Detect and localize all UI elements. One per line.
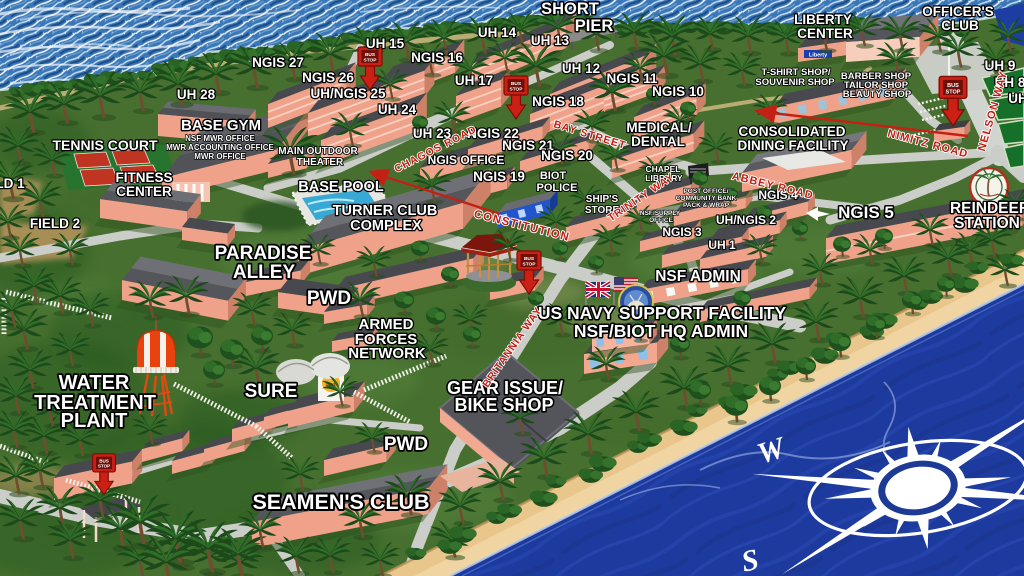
svg-text:SOUVENIR SHOP: SOUVENIR SHOP (755, 77, 835, 88)
svg-text:BEAUTY SHOP: BEAUTY SHOP (843, 89, 912, 100)
svg-text:BASE GYM: BASE GYM (181, 117, 261, 134)
svg-text:NGIS 3: NGIS 3 (662, 225, 702, 239)
svg-text:POST OFFICE/: POST OFFICE/ (683, 188, 728, 195)
svg-text:MWR ACCOUNTING OFFICE: MWR ACCOUNTING OFFICE (166, 143, 274, 152)
svg-text:NGIS 27: NGIS 27 (252, 55, 304, 70)
svg-text:NGIS 16: NGIS 16 (411, 50, 463, 65)
svg-text:WATER: WATER (59, 372, 130, 394)
svg-text:FITNESS: FITNESS (115, 170, 172, 185)
svg-text:UH 14: UH 14 (478, 25, 517, 40)
svg-text:UH 15: UH 15 (366, 36, 405, 51)
svg-text:SEAMEN'S CLUB: SEAMEN'S CLUB (252, 490, 429, 514)
svg-text:POLICE: POLICE (537, 182, 578, 194)
svg-text:SURE: SURE (245, 381, 298, 402)
svg-text:PLANT: PLANT (61, 410, 128, 432)
svg-text:UH 17: UH 17 (455, 73, 493, 88)
svg-text:LD 1: LD 1 (0, 176, 25, 191)
svg-text:NSF/BIOT HQ ADMIN: NSF/BIOT HQ ADMIN (574, 321, 748, 341)
svg-text:UH 24: UH 24 (378, 102, 417, 117)
svg-text:NGIS 11: NGIS 11 (606, 71, 658, 86)
svg-text:THEATER: THEATER (297, 157, 344, 168)
svg-text:US NAVY SUPPORT FACILITY: US NAVY SUPPORT FACILITY (538, 303, 787, 323)
svg-text:NSF MWR OFFICE: NSF MWR OFFICE (185, 134, 255, 143)
svg-text:PACK & WRAP: PACK & WRAP (683, 202, 730, 209)
svg-text:UH/NGIS 2: UH/NGIS 2 (716, 213, 776, 227)
svg-text:NGIS 5: NGIS 5 (838, 203, 894, 222)
svg-text:TENNIS COURT: TENNIS COURT (53, 137, 158, 153)
svg-text:OFFICER'S: OFFICER'S (922, 4, 993, 19)
svg-text:NSF SUPPLY: NSF SUPPLY (640, 210, 681, 217)
svg-text:PIER: PIER (575, 17, 614, 35)
svg-text:MAIN OUTDOOR: MAIN OUTDOOR (278, 146, 358, 157)
svg-text:CLUB: CLUB (941, 18, 979, 33)
svg-text:NGIS 18: NGIS 18 (532, 94, 584, 109)
svg-text:UH/NGIS 25: UH/NGIS 25 (310, 86, 386, 101)
svg-text:NGIS 20: NGIS 20 (541, 148, 593, 163)
svg-text:OFFICE: OFFICE (649, 217, 673, 224)
svg-text:CENTER: CENTER (797, 26, 853, 41)
svg-text:COMMUNITY BANK: COMMUNITY BANK (676, 195, 737, 202)
svg-text:PWD: PWD (307, 288, 351, 309)
svg-text:ALLEY: ALLEY (233, 262, 296, 283)
svg-text:FIELD 2: FIELD 2 (30, 216, 80, 231)
svg-text:NGIS 19: NGIS 19 (473, 169, 525, 184)
svg-text:CENTER: CENTER (116, 184, 172, 199)
svg-text:PWD: PWD (384, 434, 428, 455)
svg-text:BIOT: BIOT (540, 170, 567, 182)
svg-text:UH 13: UH 13 (531, 33, 570, 48)
svg-text:MWR OFFICE: MWR OFFICE (194, 152, 246, 161)
svg-text:SHORT: SHORT (541, 0, 599, 18)
svg-text:NGIS 26: NGIS 26 (302, 70, 354, 85)
svg-text:UH 1: UH 1 (708, 238, 736, 252)
svg-text:NGIS OFFICE: NGIS OFFICE (428, 153, 505, 167)
svg-text:UH 12: UH 12 (562, 61, 600, 76)
svg-text:DENTAL: DENTAL (631, 134, 685, 149)
svg-text:NETWORK: NETWORK (348, 345, 426, 362)
svg-text:MEDICAL/: MEDICAL/ (626, 120, 691, 135)
svg-text:BASE POOL: BASE POOL (298, 179, 384, 195)
svg-text:BIKE SHOP: BIKE SHOP (454, 395, 553, 415)
svg-text:NGIS 10: NGIS 10 (652, 84, 704, 99)
svg-text:LIBERTY: LIBERTY (794, 12, 852, 27)
svg-text:PARADISE: PARADISE (215, 243, 312, 264)
svg-text:TURNER CLUB: TURNER CLUB (333, 203, 438, 219)
svg-text:SHIP'S: SHIP'S (586, 194, 619, 205)
svg-text:UH 28: UH 28 (177, 87, 216, 102)
svg-text:UH: UH (1008, 91, 1024, 106)
svg-text:COMPLEX: COMPLEX (350, 218, 422, 234)
svg-text:CONSOLIDATED: CONSOLIDATED (739, 124, 846, 139)
svg-text:STATION: STATION (954, 215, 1020, 232)
svg-text:DINING FACILITY: DINING FACILITY (738, 138, 849, 153)
svg-text:NSF ADMIN: NSF ADMIN (655, 268, 741, 285)
